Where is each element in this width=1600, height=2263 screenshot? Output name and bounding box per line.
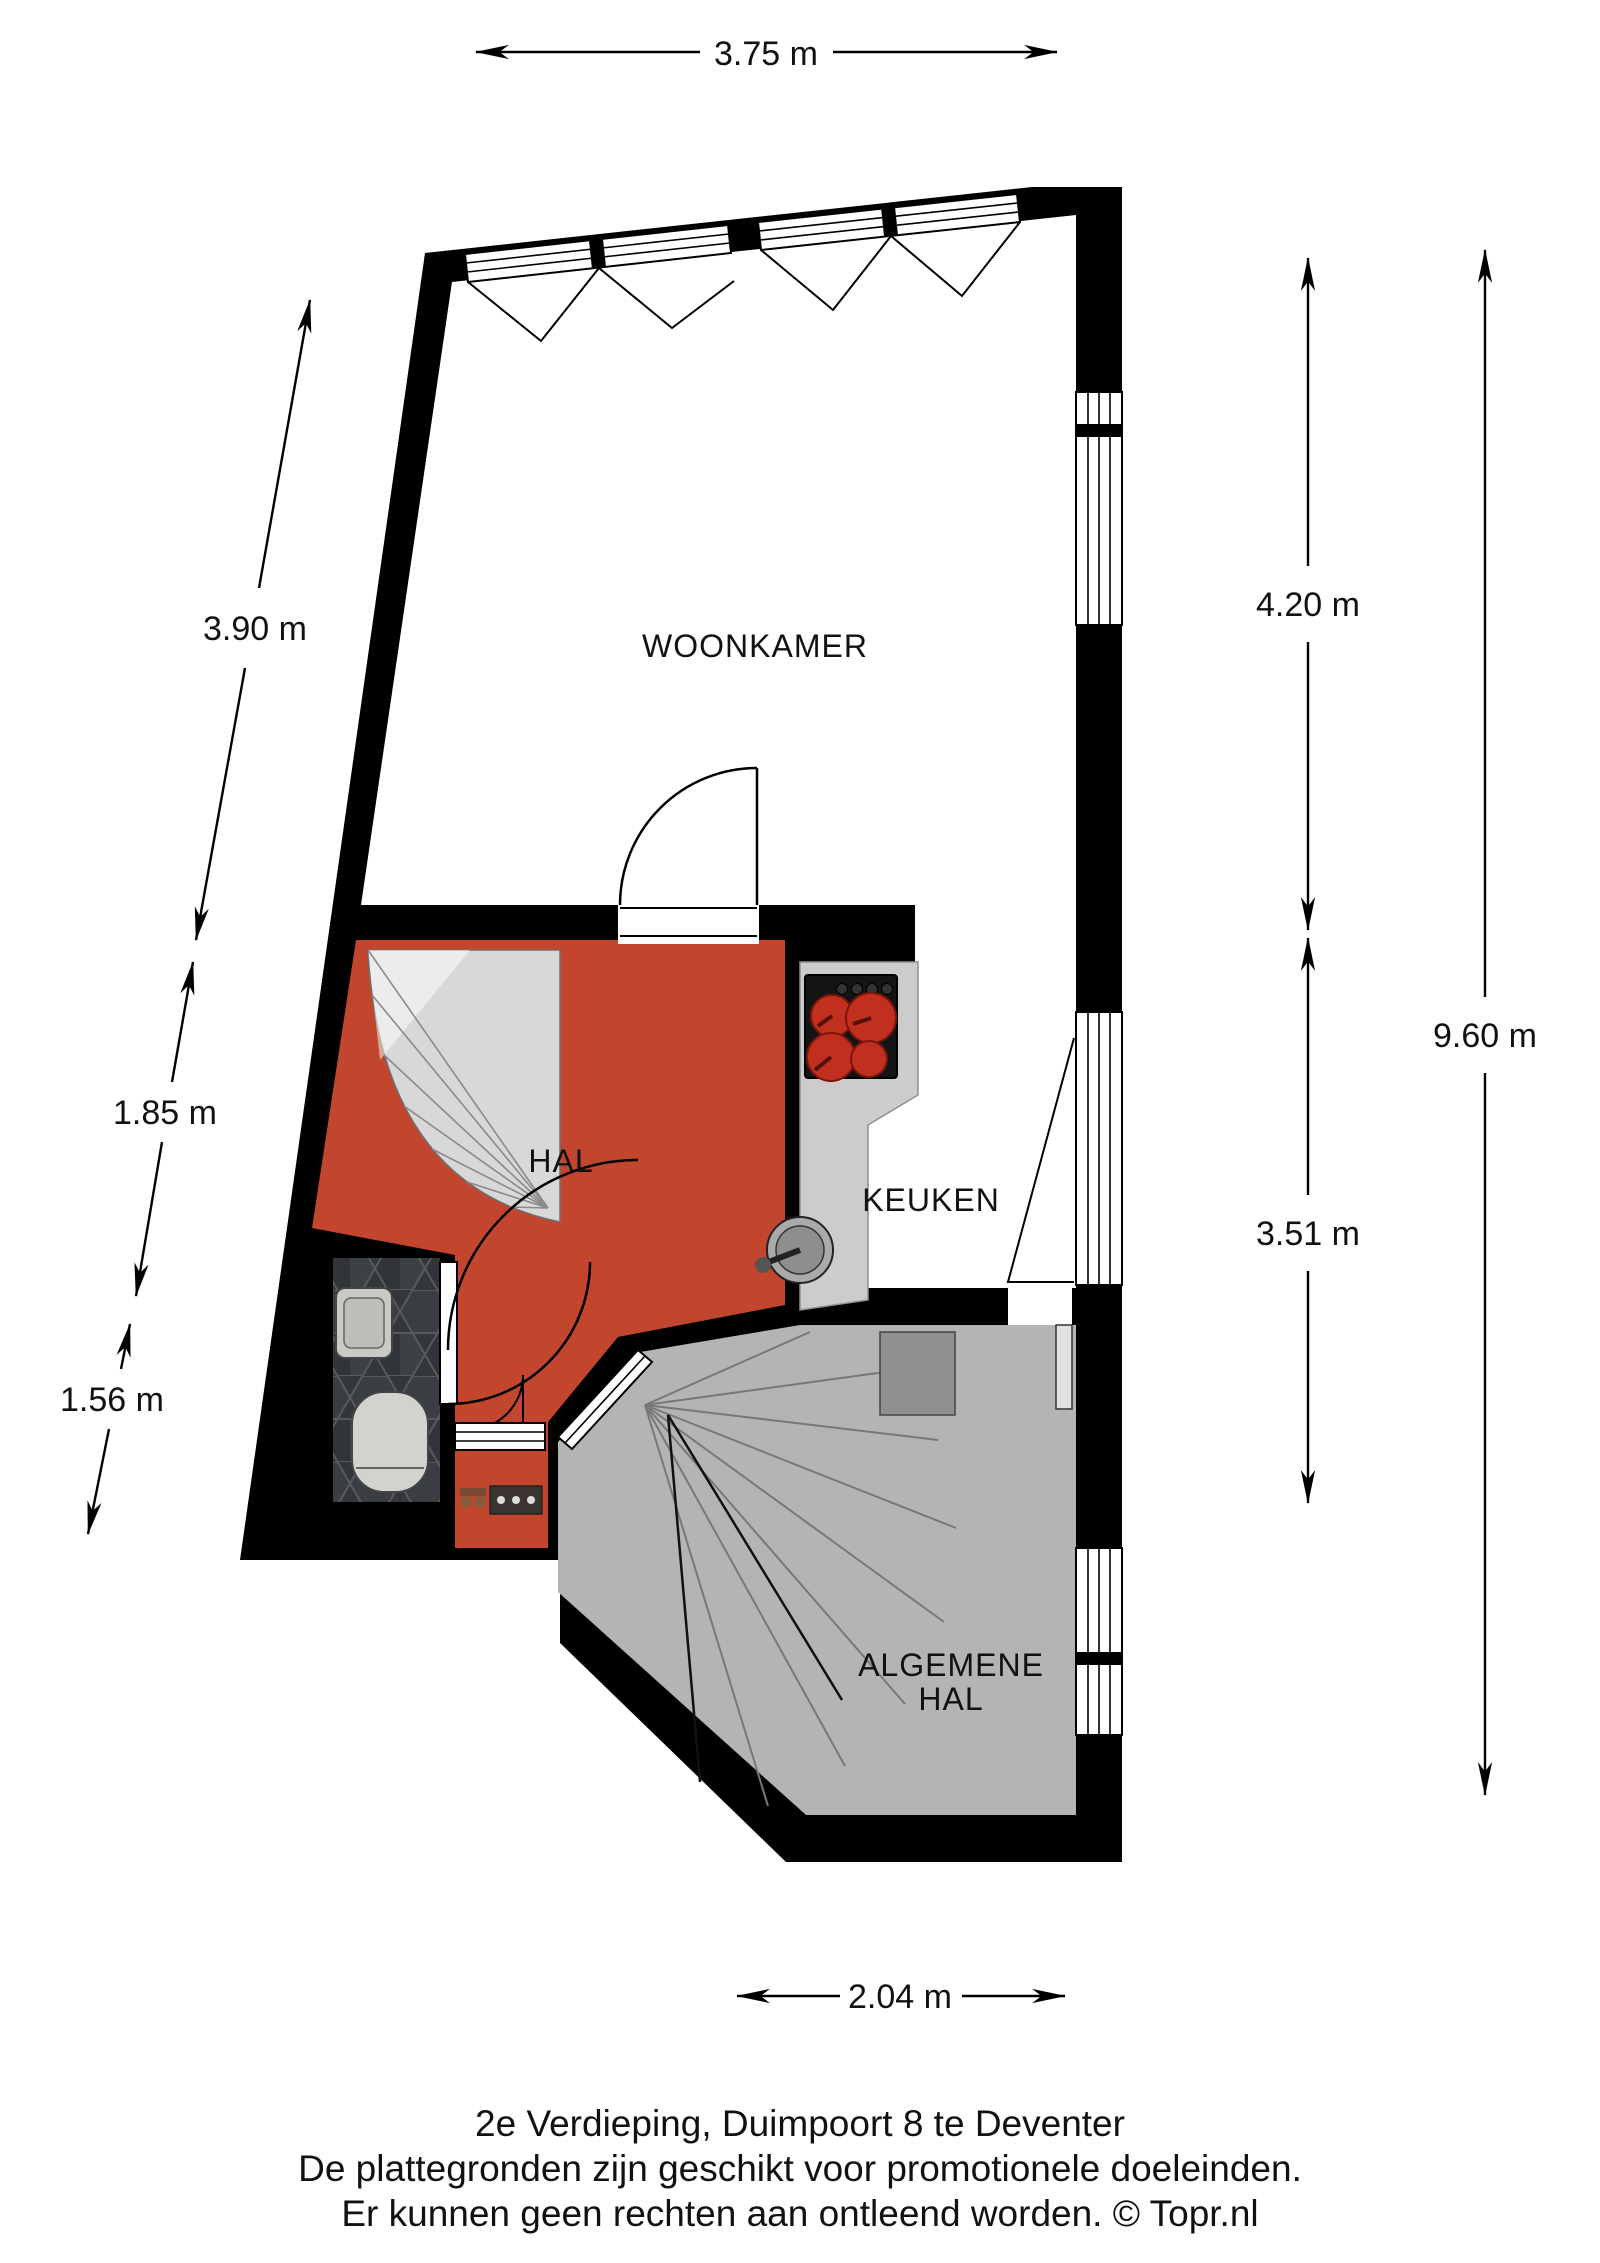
dimension-label-left-upper: 3.90 m (203, 610, 307, 648)
keuken-hal-door-opening (1008, 1288, 1072, 1325)
keuken-hal-door-leaf (1056, 1325, 1072, 1409)
room-label-woonkamer: WOONKAMER (642, 628, 868, 664)
window-hall-partition (455, 1423, 545, 1450)
toilet (352, 1392, 428, 1492)
room-algemene-hal-floor (558, 1325, 1076, 1815)
toilet-room (333, 1258, 440, 1502)
dimension-label-bottom: 2.04 m (848, 1978, 952, 2016)
floorplan-page: WOONKAMER HAL KEUKEN ALGEMENE HAL (0, 0, 1600, 2263)
room-label-hal: HAL (528, 1143, 593, 1179)
dimension-label-left-lower: 1.56 m (60, 1381, 164, 1419)
dimension-left-lower (88, 1324, 130, 1534)
dimension-label-left-middle: 1.85 m (113, 1094, 217, 1132)
dimension-label-right-keuken: 3.51 m (1256, 1215, 1360, 1253)
room-label-algemene-hal-line2: HAL (918, 1681, 983, 1717)
room-label-keuken: KEUKEN (862, 1182, 1000, 1218)
footer-line-2: De plattegronden zijn geschikt voor prom… (298, 2148, 1302, 2189)
footer-line-3: Er kunnen geen rechten aan ontleend word… (341, 2193, 1258, 2234)
stair-landing-box (880, 1332, 955, 1415)
footer-line-1: 2e Verdieping, Duimpoort 8 te Deventer (475, 2103, 1125, 2144)
stove (805, 975, 897, 1081)
dimension-label-right-total: 9.60 m (1433, 1017, 1537, 1055)
window-right-lower (1076, 1548, 1122, 1735)
dimension-label-top: 3.75 m (714, 35, 818, 73)
floor-plan-svg: WOONKAMER HAL KEUKEN ALGEMENE HAL (0, 0, 1600, 2263)
window-right-upper (1076, 392, 1122, 625)
room-label-algemene-hal-line1: ALGEMENE (858, 1647, 1044, 1683)
dimension-label-right-woonkamer: 4.20 m (1256, 586, 1360, 624)
